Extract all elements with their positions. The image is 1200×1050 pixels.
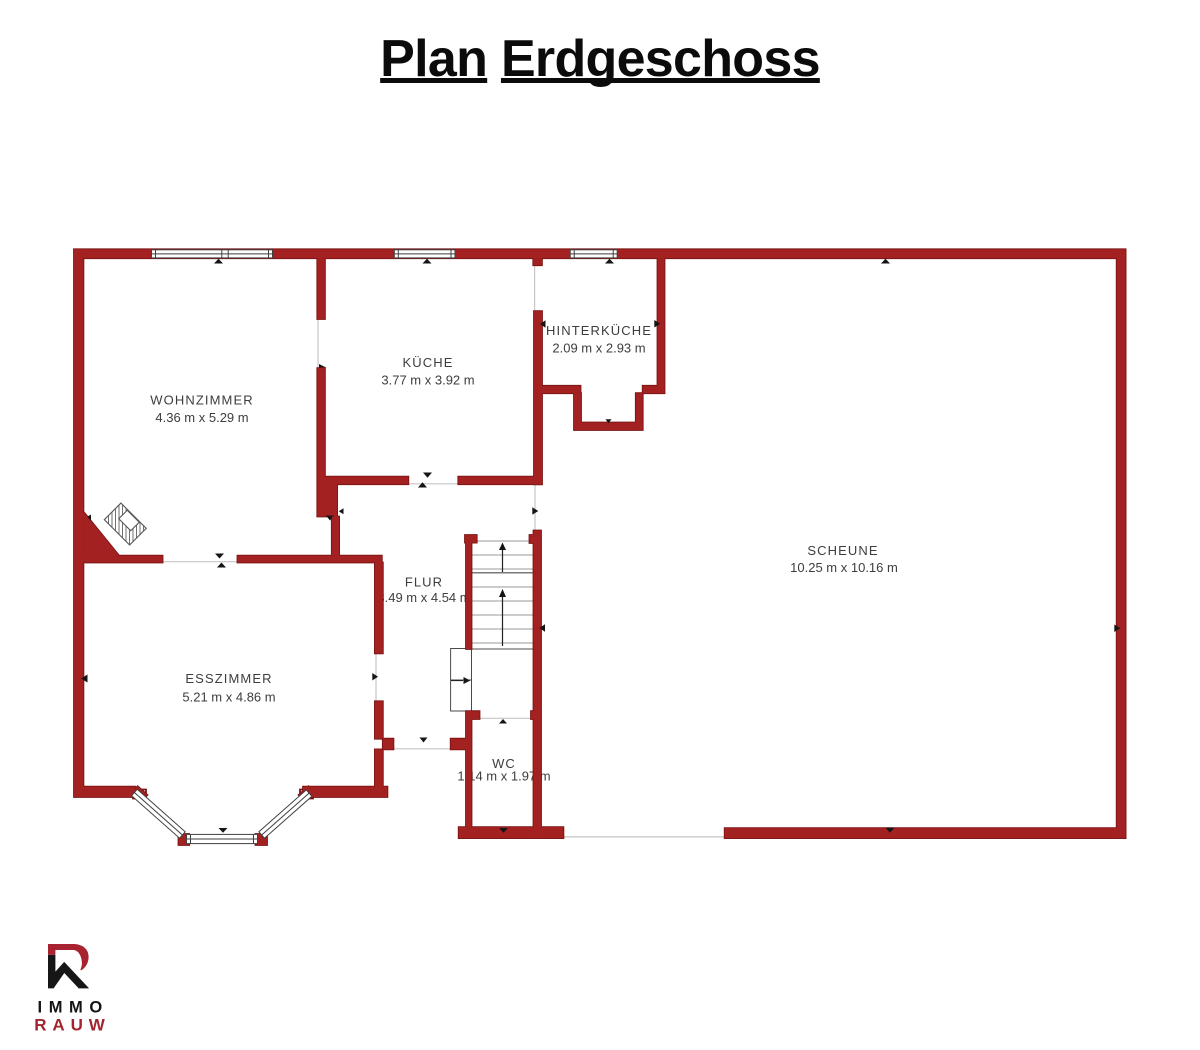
svg-text:2.09 m x 2.93 m: 2.09 m x 2.93 m [552,341,645,356]
svg-text:ESSZIMMER: ESSZIMMER [185,671,272,686]
svg-text:4.36 m x 5.29 m: 4.36 m x 5.29 m [155,410,248,425]
svg-text:5.21 m x 4.86 m: 5.21 m x 4.86 m [182,690,275,705]
svg-text:3.49 m x 4.54 m: 3.49 m x 4.54 m [377,590,470,605]
svg-text:HINTERKÜCHE: HINTERKÜCHE [546,323,652,338]
svg-text:SCHEUNE: SCHEUNE [807,543,878,558]
svg-text:WOHNZIMMER: WOHNZIMMER [150,393,253,408]
svg-text:10.25 m x 10.16 m: 10.25 m x 10.16 m [790,560,898,575]
svg-text:RAUW: RAUW [34,1016,110,1035]
svg-text:IMMO: IMMO [38,999,109,1017]
svg-text:FLUR: FLUR [405,575,443,590]
svg-text:KÜCHE: KÜCHE [402,355,453,370]
svg-text:3.77 m x 3.92 m: 3.77 m x 3.92 m [381,373,474,388]
